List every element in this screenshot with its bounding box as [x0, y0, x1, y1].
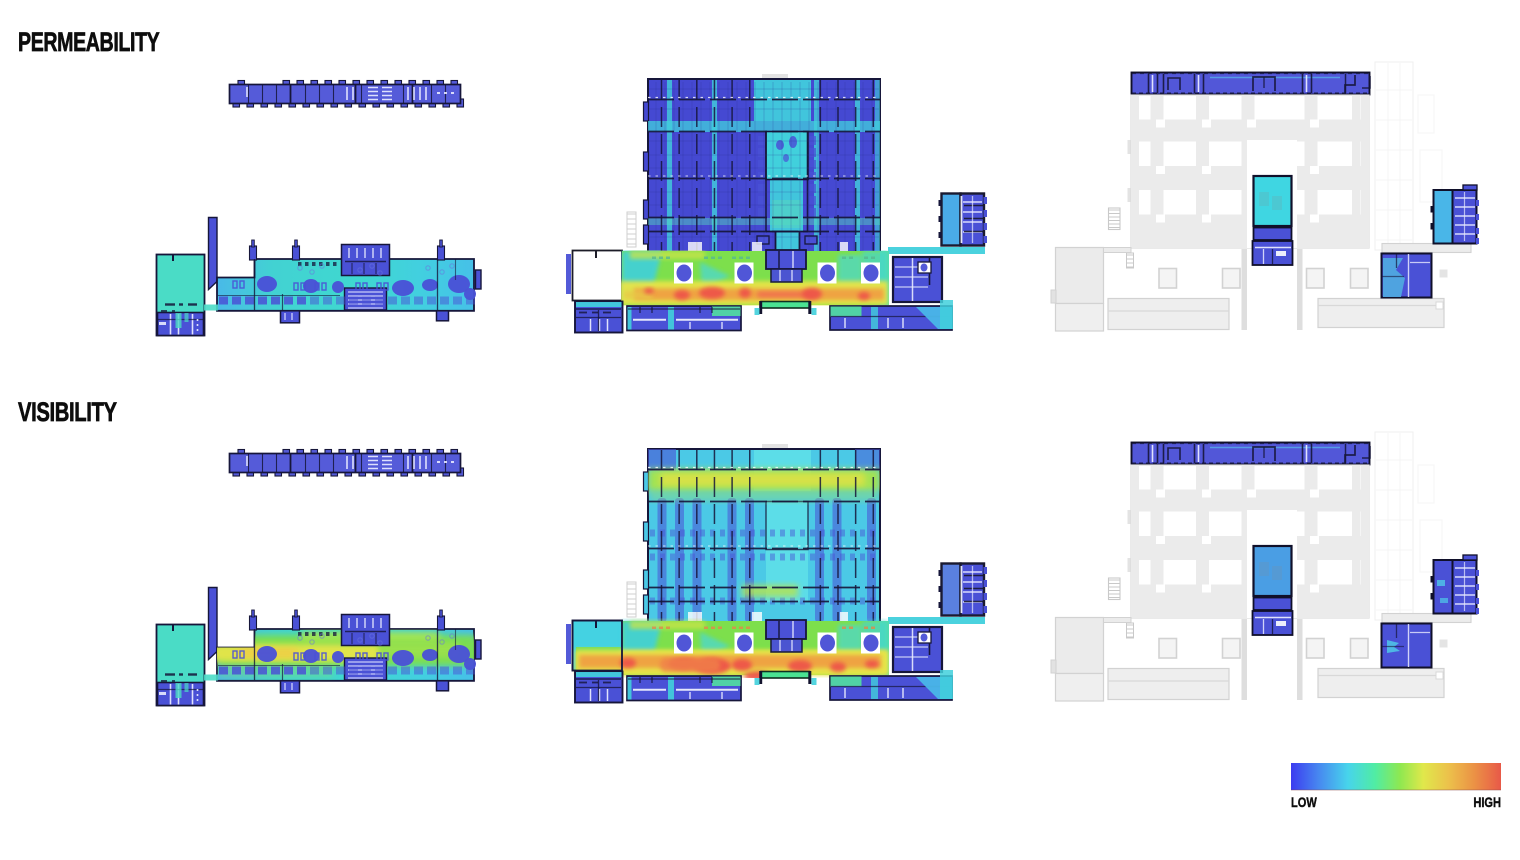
svg-text:VISIBILITY: VISIBILITY [18, 397, 117, 428]
svg-text:PERMEABILITY: PERMEABILITY [18, 27, 160, 57]
svg-text:LOW: LOW [1291, 795, 1317, 810]
svg-text:HIGH: HIGH [1473, 795, 1501, 810]
